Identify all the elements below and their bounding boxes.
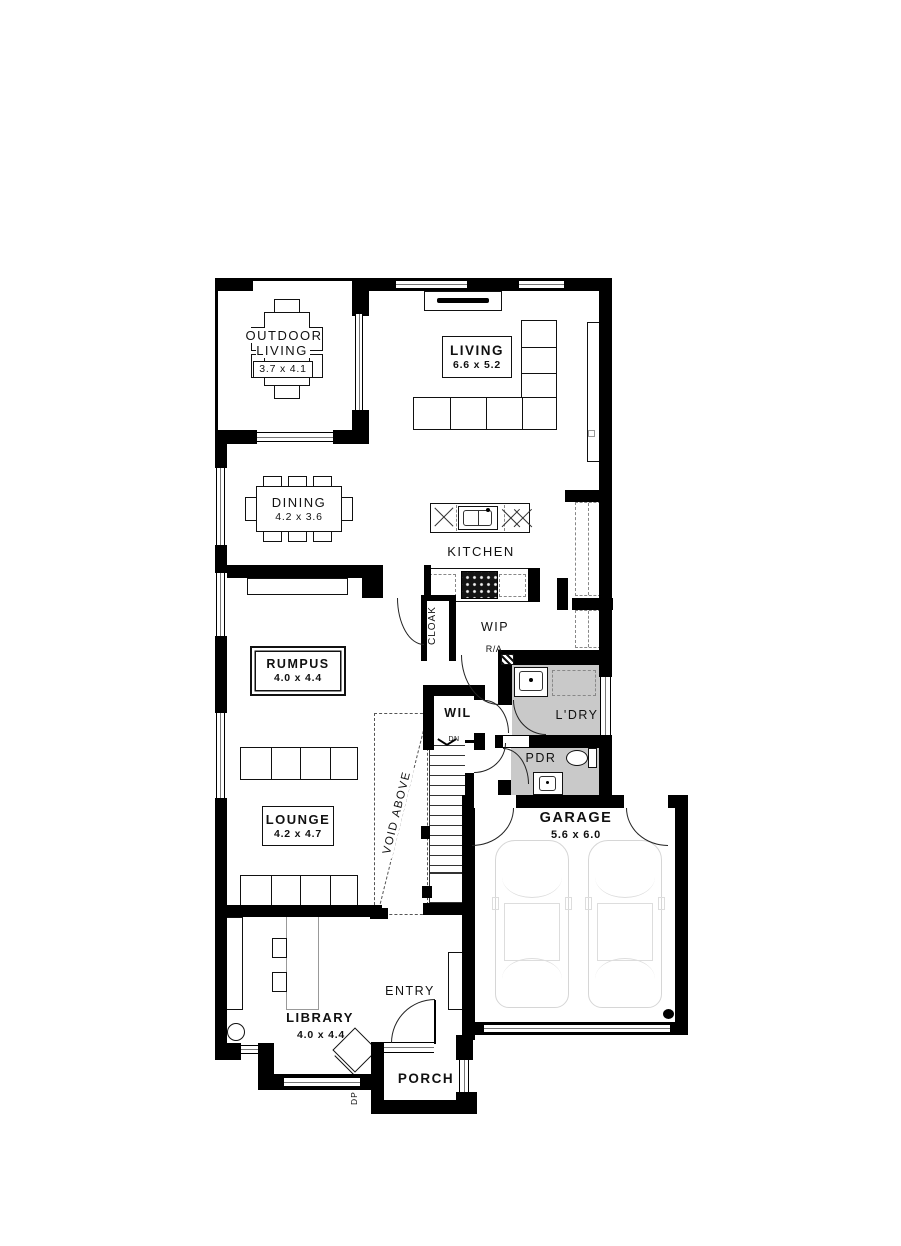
room-dims-garage: 5.6 x 6.0 <box>534 829 618 842</box>
wall <box>370 908 388 919</box>
wall <box>215 1043 241 1060</box>
room-label-kitchen: KITCHEN <box>443 544 519 560</box>
pantry-shelves <box>575 502 601 596</box>
wall <box>456 1035 473 1060</box>
rumpus-cabinet <box>247 578 348 595</box>
wall <box>421 826 430 839</box>
trough-tap <box>529 678 533 682</box>
window <box>216 713 225 798</box>
window <box>519 280 564 289</box>
garage-panel-door <box>484 1024 670 1033</box>
round-table <box>227 1023 245 1041</box>
door-arc <box>397 598 424 645</box>
door-opening <box>472 795 516 808</box>
kitchen-sink-bowl <box>463 510 492 526</box>
wall <box>215 430 257 444</box>
basin-tap <box>546 781 549 784</box>
return-air-symbol <box>501 654 514 665</box>
window <box>459 1060 469 1092</box>
bookshelf <box>226 917 243 1010</box>
outdoor-chair <box>274 299 300 313</box>
room-dims-outdoor-living: 3.7 x 4.1 <box>253 361 313 378</box>
room-label-box-lounge: LOUNGE 4.2 x 4.7 <box>262 806 334 846</box>
fridge-space <box>575 610 601 648</box>
laundry-bench <box>552 670 596 696</box>
outdoor-chair <box>274 385 300 399</box>
room-label-box-living: LIVING 6.6 x 5.2 <box>442 336 512 378</box>
door-arc <box>474 743 506 773</box>
car <box>588 840 662 1008</box>
dining-chair <box>288 531 307 542</box>
wall <box>528 568 540 602</box>
room-label-garage: GARAGE <box>514 810 638 827</box>
bench-cabinet <box>429 574 456 597</box>
toilet-bowl <box>566 750 588 766</box>
entry-sidelight-window <box>384 1042 434 1053</box>
room-label-lounge: LOUNGE <box>266 812 331 828</box>
room-label-wip: WIP <box>470 620 520 635</box>
floor-marker <box>663 1009 674 1019</box>
dining-chair <box>341 497 353 521</box>
lounge-sofa <box>240 747 358 780</box>
downpipe-label: DP <box>349 1086 363 1110</box>
room-label-library: LIBRARY <box>283 1010 357 1026</box>
room-label-living: LIVING <box>450 343 504 359</box>
floor-plan-canvas: DINING 4.2 x 3.6 RUMPUS 4.0 x 4.4 <box>0 0 901 1246</box>
wall <box>565 490 612 502</box>
tv-screen <box>437 298 489 303</box>
bench-cabinet <box>499 574 526 597</box>
island-divider <box>504 505 505 531</box>
room-label-outdoor-living: OUTDOOR LIVING <box>240 329 326 359</box>
dining-table: DINING 4.2 x 3.6 <box>256 486 342 532</box>
wall <box>572 598 613 610</box>
wall <box>215 798 227 1060</box>
cooktop <box>461 571 498 599</box>
door-arc <box>461 655 499 705</box>
wall <box>362 565 383 598</box>
room-label-laundry: L'DRY <box>547 708 607 723</box>
wall <box>227 565 383 578</box>
wall <box>456 1092 477 1114</box>
cabinet-x-mark <box>435 507 453 527</box>
wall <box>215 545 227 573</box>
wall <box>510 650 603 665</box>
pool-table: RUMPUS 4.0 x 4.4 <box>250 646 346 696</box>
window <box>216 573 225 636</box>
wall <box>423 685 434 750</box>
wall <box>333 430 369 444</box>
room-label-dining: DINING <box>272 495 327 511</box>
down-label: DN <box>445 736 463 744</box>
room-dims-dining: 4.2 x 3.6 <box>275 511 322 524</box>
wall <box>215 278 218 438</box>
door-opening <box>503 736 529 747</box>
cabinet-x-mark <box>518 508 528 527</box>
wall <box>675 808 688 1035</box>
wall <box>215 444 227 468</box>
dining-chair <box>263 531 282 542</box>
room-label-cloak: CLOAK <box>427 601 449 651</box>
room-label-rumpus: RUMPUS <box>266 657 329 672</box>
island-divider <box>456 505 457 531</box>
window <box>257 432 333 442</box>
wall <box>215 278 355 281</box>
room-label-powder: PDR <box>520 751 562 766</box>
room-label-porch: PORCH <box>394 1071 458 1087</box>
car <box>495 840 569 1008</box>
desk-chair <box>272 972 287 992</box>
room-dims-lounge: 4.2 x 4.7 <box>274 828 322 841</box>
library-desk <box>286 915 319 1010</box>
sofa-vertical <box>521 320 557 398</box>
sliding-door <box>355 314 363 414</box>
sofa-horizontal <box>413 397 557 430</box>
door-opening <box>465 743 474 773</box>
wall <box>422 886 432 898</box>
room-dims-living: 6.6 x 5.2 <box>453 359 501 372</box>
room-dims-library: 4.0 x 4.4 <box>297 1029 345 1042</box>
toilet-cistern <box>588 748 597 768</box>
wall <box>218 905 382 917</box>
room-label-wil: WIL <box>438 706 478 721</box>
sink-tap <box>486 508 490 512</box>
window <box>216 468 225 545</box>
cloak-door-opening <box>427 651 449 661</box>
dining-chair <box>313 531 332 542</box>
door-opening <box>624 795 668 808</box>
window <box>600 677 611 735</box>
window <box>396 280 467 289</box>
room-dims-rumpus: 4.0 x 4.4 <box>274 672 322 685</box>
wall <box>557 578 568 610</box>
wall <box>215 636 227 713</box>
lounge-sofa <box>240 875 358 908</box>
wall-marker <box>588 430 595 437</box>
room-label-entry: ENTRY <box>380 984 440 999</box>
wall <box>599 291 612 677</box>
door-arc <box>391 999 435 1043</box>
desk-chair <box>272 938 287 958</box>
